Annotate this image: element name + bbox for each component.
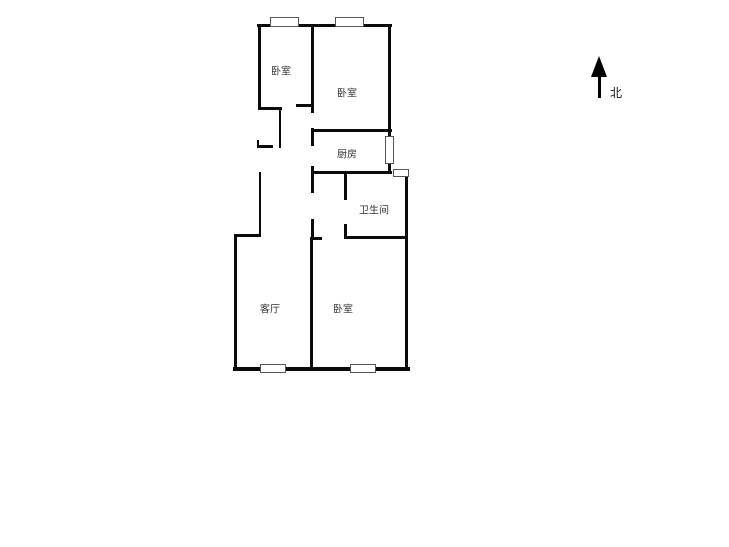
wall (279, 107, 281, 148)
wall (311, 128, 314, 146)
wall (311, 166, 314, 193)
wall (312, 129, 392, 132)
wall (234, 234, 237, 371)
window (270, 17, 299, 27)
room-label-living-room: 客厅 (260, 301, 280, 316)
north-label: 北 (610, 84, 622, 101)
wall (310, 237, 313, 370)
room-label-bedroom-1: 卧室 (271, 63, 291, 78)
window (393, 169, 409, 177)
wall (311, 24, 314, 113)
room-label-bathroom: 卫生间 (359, 202, 389, 217)
room-label-bedroom-2: 卧室 (337, 85, 357, 100)
wall (312, 171, 392, 174)
wall (257, 145, 273, 148)
page: { "compass": { "label": "北" }, "rooms": … (0, 0, 729, 547)
wall (405, 172, 408, 371)
window (350, 364, 376, 373)
wall (344, 174, 347, 200)
window (335, 17, 364, 27)
window (385, 136, 394, 164)
north-arrow-shaft (598, 74, 601, 98)
wall (259, 172, 261, 236)
wall (257, 140, 259, 148)
floor-plan: 卧室 卧室 厨房 卫生间 客厅 卧室 北 (0, 0, 729, 547)
room-label-kitchen: 厨房 (337, 146, 357, 161)
window (260, 364, 286, 373)
wall (258, 24, 261, 109)
room-label-bedroom-3: 卧室 (333, 301, 353, 316)
wall (344, 236, 408, 239)
wall (344, 224, 347, 239)
wall (234, 234, 261, 237)
